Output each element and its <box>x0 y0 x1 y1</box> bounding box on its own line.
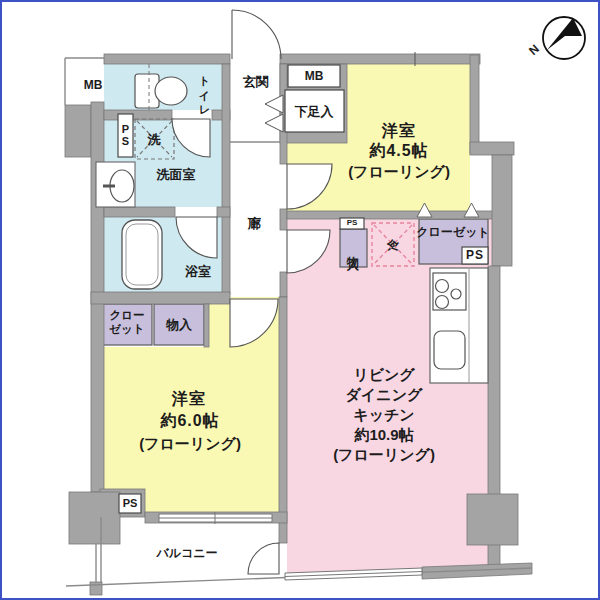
laundry-label: 洗 <box>148 133 161 146</box>
entrance-door-arc <box>232 10 281 59</box>
bedroom60-size: 約6.0帖 <box>160 413 219 429</box>
ps-right-label: PS <box>466 249 484 261</box>
hallway-label: 廊下 <box>248 205 261 209</box>
bathtub-icon <box>122 220 162 289</box>
bath-label: 浴室 <box>185 265 211 278</box>
ldk-floor-type: (フローリング) <box>333 447 435 462</box>
washbasin-icon <box>96 162 135 207</box>
ldk-size: 約10.9帖 <box>354 427 413 442</box>
kitchen-counter <box>430 268 488 383</box>
ps-mid-label: PS <box>347 219 358 227</box>
bedroom45-size: 約4.5帖 <box>369 143 428 159</box>
ldk-name-line1: リビング <box>353 367 414 382</box>
kitchen-sink-icon <box>434 331 465 369</box>
bedroom60-floor-type: (フローリング) <box>139 436 241 451</box>
floor-plan: MB トイレ 玄関 MB 下足入 洋室 約4.5帖 (フローリング) PS 洗 … <box>0 0 600 600</box>
balcony-door-arc <box>248 543 279 574</box>
compass-icon <box>543 17 585 59</box>
balcony-window-bedroom60 <box>159 512 272 524</box>
ldk-name-line2: ダイニング <box>346 387 423 402</box>
closet-right-label: クローゼット <box>416 226 489 238</box>
shoe-cabinet-label: 下足入 <box>295 105 334 118</box>
toilet-label: トイレ <box>199 68 210 112</box>
balcony-label: バルコニー <box>156 547 217 559</box>
mb-top-label: MB <box>305 70 324 82</box>
mb-left-label: MB <box>84 79 103 91</box>
bedroom45-floor-type: (フローリング) <box>348 164 450 179</box>
ldk-name-line3: キッチン <box>353 407 414 422</box>
washroom-label: 洗面室 <box>157 168 196 181</box>
storage-left-label: 物入 <box>166 318 192 331</box>
fridge-label: 冷 <box>387 239 399 251</box>
ps-wash-label: PS <box>120 123 131 147</box>
stove-icon <box>433 273 466 310</box>
closet-left-label-line1: クロー <box>109 310 144 322</box>
entrance-label: 玄関 <box>243 75 269 88</box>
closet-left-label-line2: ゼット <box>109 324 144 336</box>
bedroom45-name: 洋室 <box>382 123 416 139</box>
storage-mid-label: 物入 <box>347 246 359 250</box>
ps-bottom-label: PS <box>123 498 138 509</box>
bedroom60-name: 洋室 <box>172 391 206 407</box>
